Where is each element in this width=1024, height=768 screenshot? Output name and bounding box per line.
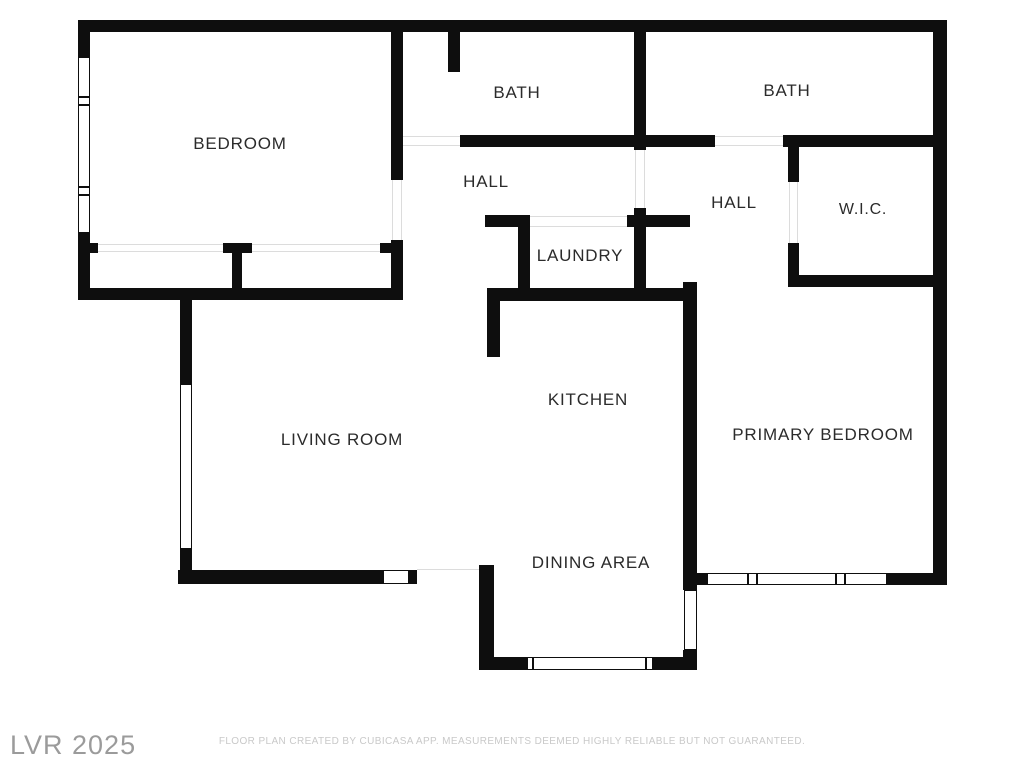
opening-living-dining — [417, 569, 479, 570]
closet-stub-left — [88, 243, 98, 253]
wall-bath-divider — [634, 20, 646, 150]
watermark-lvr: LVR 2025 — [10, 730, 136, 761]
door-opening-bath2 — [715, 145, 783, 146]
closet-track-line — [98, 251, 223, 252]
window-living-left — [180, 384, 192, 549]
wall-dining-right-bottom — [683, 650, 697, 670]
wall-laundry-left — [518, 215, 530, 295]
window-mullion — [532, 658, 534, 669]
window-mullion — [835, 574, 837, 584]
wall-bath2-bottom-left — [646, 135, 715, 147]
closet-track-line — [98, 244, 223, 245]
room-label-dining-area: DINING AREA — [532, 553, 650, 573]
room-label-laundry: LAUNDRY — [537, 246, 624, 266]
closet-stub-center-v — [232, 243, 242, 288]
wall-kitchen-left — [487, 288, 500, 357]
wall-bath1-entry-stub — [448, 20, 460, 72]
wall-primary-bottom-right — [887, 573, 947, 585]
closet-stub-right — [380, 243, 397, 253]
wall-wic-left-top — [788, 147, 799, 182]
room-label-bedroom: BEDROOM — [193, 134, 286, 154]
wall-dining-left — [479, 565, 494, 670]
door-opening-laundry — [530, 216, 627, 217]
wall-right-outer — [933, 20, 947, 585]
wall-kitchen-top — [487, 288, 687, 301]
window-dining-right — [684, 590, 697, 650]
room-label-primary-bedroom: PRIMARY BEDROOM — [732, 425, 913, 445]
wall-bath2-bottom-right — [783, 135, 933, 147]
window-mullion — [645, 658, 647, 669]
wall-laundry-top-right — [627, 215, 690, 227]
wall-living-bottom-a — [178, 570, 383, 584]
closet-track-line — [252, 251, 380, 252]
room-label-living-room: LIVING ROOM — [281, 430, 403, 450]
room-label-kitchen: KITCHEN — [548, 390, 628, 410]
closet-track-line — [252, 244, 380, 245]
window-living-bottom — [383, 570, 409, 584]
wall-bedroom-bottom — [78, 288, 403, 300]
room-label-hall-left: HALL — [463, 172, 509, 192]
window-dining-bottom — [527, 657, 653, 670]
room-label-wic: W.I.C. — [839, 201, 887, 219]
wall-living-bottom-b — [409, 570, 417, 584]
door-opening-bath1 — [403, 136, 460, 137]
room-label-bath-top: BATH — [493, 83, 540, 103]
wall-left-upper — [78, 20, 90, 57]
room-label-hall-right: HALL — [711, 193, 757, 213]
window-mullion — [79, 194, 89, 196]
footer-disclaimer: FLOOR PLAN CREATED BY CUBICASA APP. MEAS… — [219, 736, 805, 747]
door-opening-bath2 — [715, 136, 783, 137]
door-opening-bath1 — [403, 145, 460, 146]
door-opening-hall — [644, 150, 645, 208]
window-mullion — [79, 104, 89, 106]
door-opening-bedroom — [392, 180, 393, 240]
window-bedroom-left — [78, 57, 90, 233]
wall-top — [78, 20, 947, 32]
room-label-bath-right: BATH — [763, 81, 810, 101]
door-opening-wic — [789, 182, 790, 243]
door-opening-hall — [635, 150, 636, 208]
wall-primary-left — [683, 282, 697, 585]
window-mullion — [79, 186, 89, 188]
window-primary-bottom — [707, 573, 887, 585]
wall-living-left-upper — [180, 300, 192, 384]
window-mullion — [747, 574, 749, 584]
door-opening-laundry — [530, 226, 627, 227]
window-mullion — [844, 574, 846, 584]
wall-bath1-bottom — [460, 135, 634, 147]
wall-dining-bottom-left — [479, 657, 527, 670]
wall-wic-bottom — [788, 275, 947, 287]
floor-plan: BEDROOM BATH BATH HALL HALL W.I.C. LAUND… — [0, 0, 1024, 768]
window-mullion — [756, 574, 758, 584]
door-opening-wic — [797, 182, 798, 243]
wall-dining-right-top — [683, 573, 697, 590]
door-opening-bedroom — [401, 180, 402, 240]
wall-bedroom-right-upper — [391, 20, 403, 180]
window-mullion — [79, 96, 89, 98]
